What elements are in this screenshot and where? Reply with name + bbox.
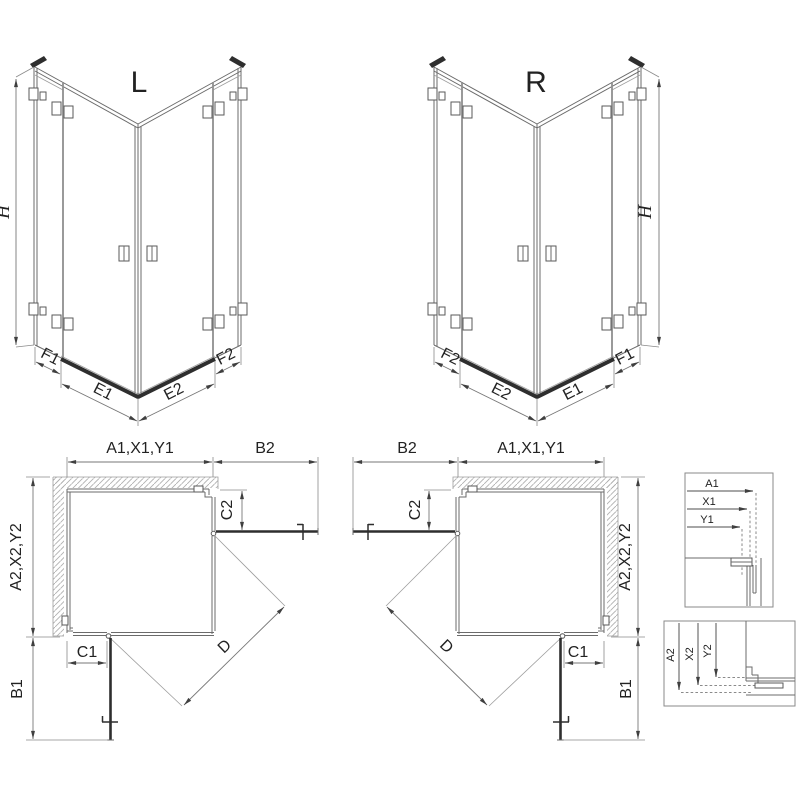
iso-view-l: L H F1 E1 E2 F2 [0, 56, 247, 426]
diagram-page: L H F1 E1 E2 F2 R H F2 E2 E1 F1 A1,X1,Y1… [0, 0, 800, 800]
plan-l-door-side-label: B2 [255, 440, 275, 457]
iso-r-geometry [428, 56, 659, 426]
plan-l-geometry [26, 457, 318, 740]
detail-width-label-a1: A1 [705, 478, 718, 490]
detail-width-label-x1: X1 [702, 496, 715, 508]
plan-r-geometry [353, 457, 645, 740]
detail-depth-box: A2 X2 Y2 [664, 621, 795, 706]
shower-enclosure-diagram: L H F1 E1 E2 F2 R H F2 E2 E1 F1 A1,X1,Y1… [0, 0, 800, 800]
plan-r-fixed-bottom-label: C1 [568, 644, 589, 661]
iso-l-height-label: H [0, 204, 14, 220]
plan-l-fixed-bottom-label: C1 [77, 644, 98, 661]
plan-l-fixed-side-label: C2 [219, 500, 236, 521]
wall-hatch-left [53, 477, 64, 636]
detail-width-box: A1 X1 Y1 [685, 473, 773, 607]
plan-l-door-bottom-label: B1 [9, 679, 26, 699]
detail-width-label-y1: Y1 [700, 514, 713, 526]
wall-hatch-top [453, 477, 618, 488]
plan-l-diagonal-label: D [215, 637, 235, 657]
detail-depth-label-x2: X2 [684, 647, 696, 660]
plan-r-width-label: A1,X1,Y1 [497, 440, 565, 457]
iso-r-title: R [525, 66, 547, 99]
iso-view-r: R H F2 E2 E1 F1 [428, 56, 659, 426]
plan-view-r: B2 A1,X1,Y1 A2,X2,Y2 C2 C1 B1 D [353, 440, 645, 740]
iso-r-height-label: H [635, 204, 656, 220]
wall-hatch-top [53, 477, 218, 488]
iso-l-geometry [16, 56, 247, 426]
plan-r-door-bottom-label: B1 [618, 679, 635, 699]
plan-r-depth-label: A2,X2,Y2 [617, 523, 634, 591]
plan-view-l: A1,X1,Y1 B2 A2,X2,Y2 C2 C1 B1 D [8, 440, 318, 740]
plan-l-depth-label: A2,X2,Y2 [8, 523, 25, 591]
detail-depth-label-y2: Y2 [702, 644, 714, 657]
iso-l-title: L [131, 66, 148, 99]
detail-depth-label-a2: A2 [665, 648, 677, 661]
plan-r-fixed-side-label: C2 [407, 500, 424, 521]
plan-r-door-side-label: B2 [397, 440, 417, 457]
plan-l-width-label: A1,X1,Y1 [106, 440, 174, 457]
plan-r-diagonal-label: D [436, 637, 456, 657]
